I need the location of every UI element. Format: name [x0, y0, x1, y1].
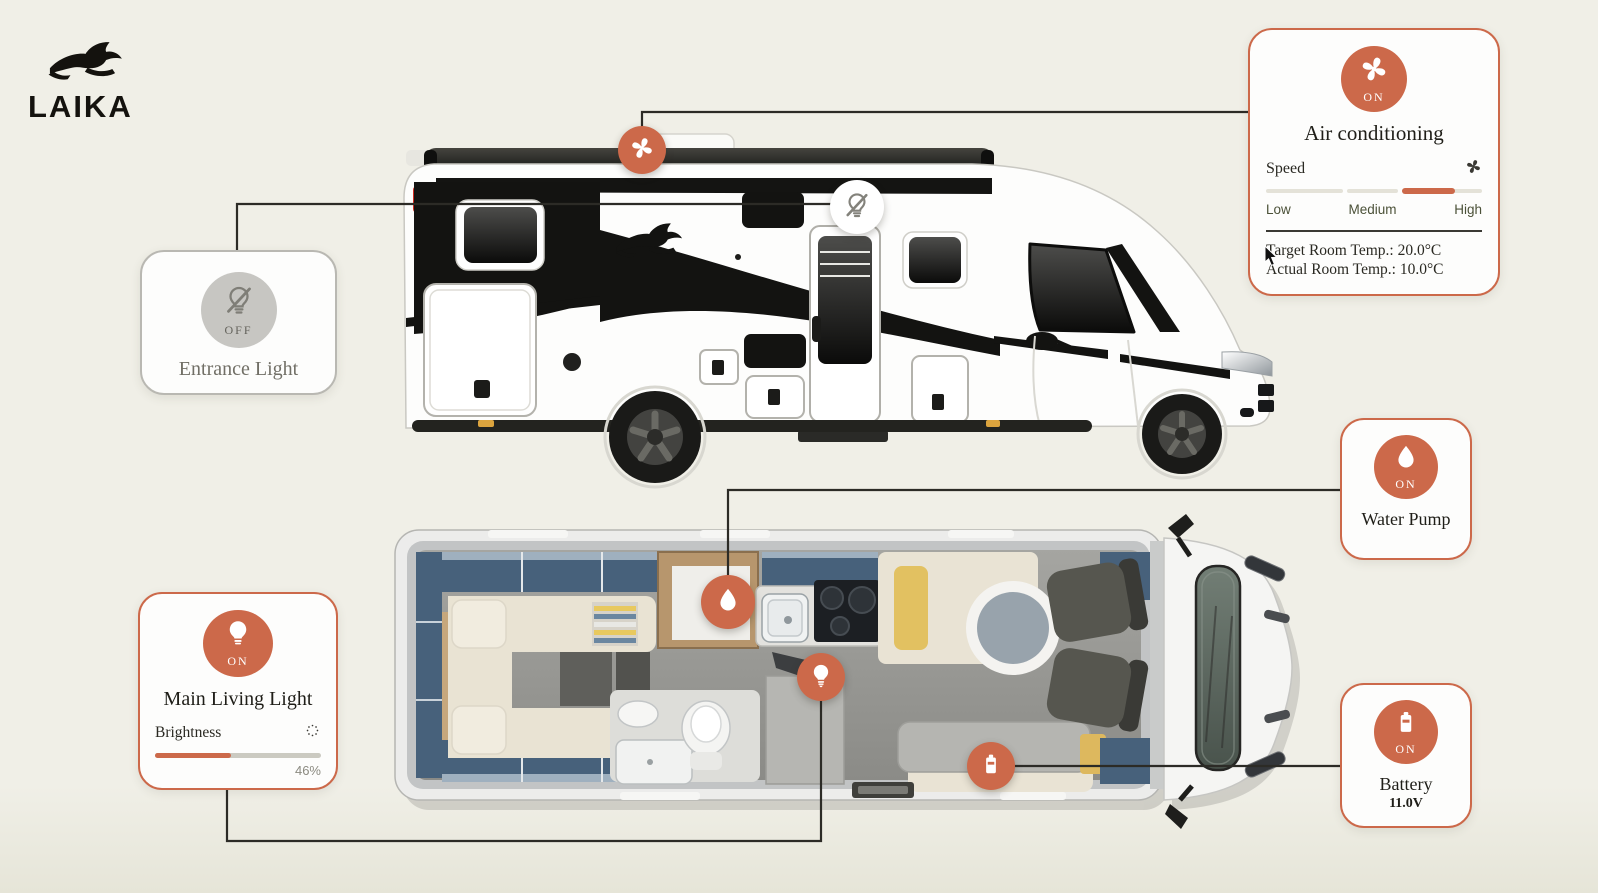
magazine-rack: [592, 602, 638, 646]
brightness-icon: [304, 722, 321, 744]
air-conditioning-marker[interactable]: [618, 126, 666, 174]
entrance-light-toggle[interactable]: OFF: [201, 272, 277, 348]
status-badge: ON: [227, 654, 248, 669]
card-title: Entrance Light: [179, 358, 298, 381]
battery-marker[interactable]: [967, 742, 1015, 790]
floor-plan: [395, 514, 1300, 829]
status-badge: OFF: [224, 323, 252, 338]
speed-label: Speed: [1266, 160, 1305, 178]
main-living-light-toggle[interactable]: ON: [203, 610, 273, 677]
card-title: Main Living Light: [164, 688, 313, 711]
bulb-icon: [223, 618, 253, 653]
main-living-light-card: ON Main Living Light Brightness 46%: [138, 592, 338, 790]
brightness-fill: [155, 753, 231, 758]
laika-dog-icon: [28, 34, 150, 82]
laika-logo: LAIKA: [28, 34, 178, 125]
bulb-slash-icon: [222, 283, 256, 322]
entrance-light-card: OFF Entrance Light: [140, 250, 337, 395]
smart-rv-dashboard: { "brand": { "name": "LAIKA" }, "colors"…: [0, 0, 1598, 893]
battery-icon: [1392, 708, 1420, 741]
target-temp-line: Target Room Temp.: 20.0°C: [1266, 241, 1482, 260]
fan-icon: [1359, 54, 1389, 89]
air-conditioning-toggle[interactable]: ON: [1341, 46, 1407, 112]
battery-voltage: 11.0V: [1389, 796, 1423, 812]
front-wheel: [1138, 390, 1226, 478]
water-drop-icon: [714, 586, 742, 619]
bulb-icon: [808, 662, 834, 693]
connector-air-conditioning: [642, 112, 1248, 132]
status-badge: ON: [1363, 90, 1384, 105]
mouse-cursor: [1264, 246, 1280, 268]
brightness-label: Brightness: [155, 724, 221, 742]
speed-option-low[interactable]: Low: [1266, 202, 1291, 217]
brand-wordmark: LAIKA: [28, 89, 178, 125]
actual-temp-line: Actual Room Temp.: 10.0°C: [1266, 260, 1482, 279]
divider: [1266, 230, 1482, 232]
fan-icon: [629, 135, 655, 166]
entrance-light-marker[interactable]: [830, 180, 884, 234]
fan-small-icon: [1465, 158, 1482, 180]
main-living-light-marker[interactable]: [797, 653, 845, 701]
cooktop: [814, 580, 880, 642]
water-pump-card: ON Water Pump: [1340, 418, 1472, 560]
water-drop-icon: [1392, 443, 1420, 476]
brightness-slider[interactable]: [155, 753, 321, 758]
speed-slider[interactable]: [1266, 189, 1482, 194]
speed-slider-fill: [1402, 188, 1455, 194]
entry-door: [810, 226, 880, 422]
water-pump-toggle[interactable]: ON: [1374, 435, 1438, 499]
battery-toggle[interactable]: ON: [1374, 700, 1438, 764]
card-title: Air conditioning: [1304, 121, 1443, 146]
brightness-value: 46%: [155, 763, 321, 778]
battery-card: ON Battery 11.0V: [1340, 683, 1472, 828]
card-title: Water Pump: [1361, 509, 1450, 530]
water-pump-marker[interactable]: [701, 575, 755, 629]
battery-icon: [978, 751, 1004, 782]
speed-option-medium[interactable]: Medium: [1348, 202, 1396, 217]
status-badge: ON: [1395, 477, 1416, 492]
rear-wheel: [605, 387, 705, 487]
bulb-slash-icon: [842, 190, 872, 225]
card-title: Battery: [1380, 774, 1433, 795]
status-badge: ON: [1395, 742, 1416, 757]
air-conditioning-card: ON Air conditioning Speed Low Medium Hig…: [1248, 28, 1500, 296]
speed-option-high[interactable]: High: [1454, 202, 1482, 217]
